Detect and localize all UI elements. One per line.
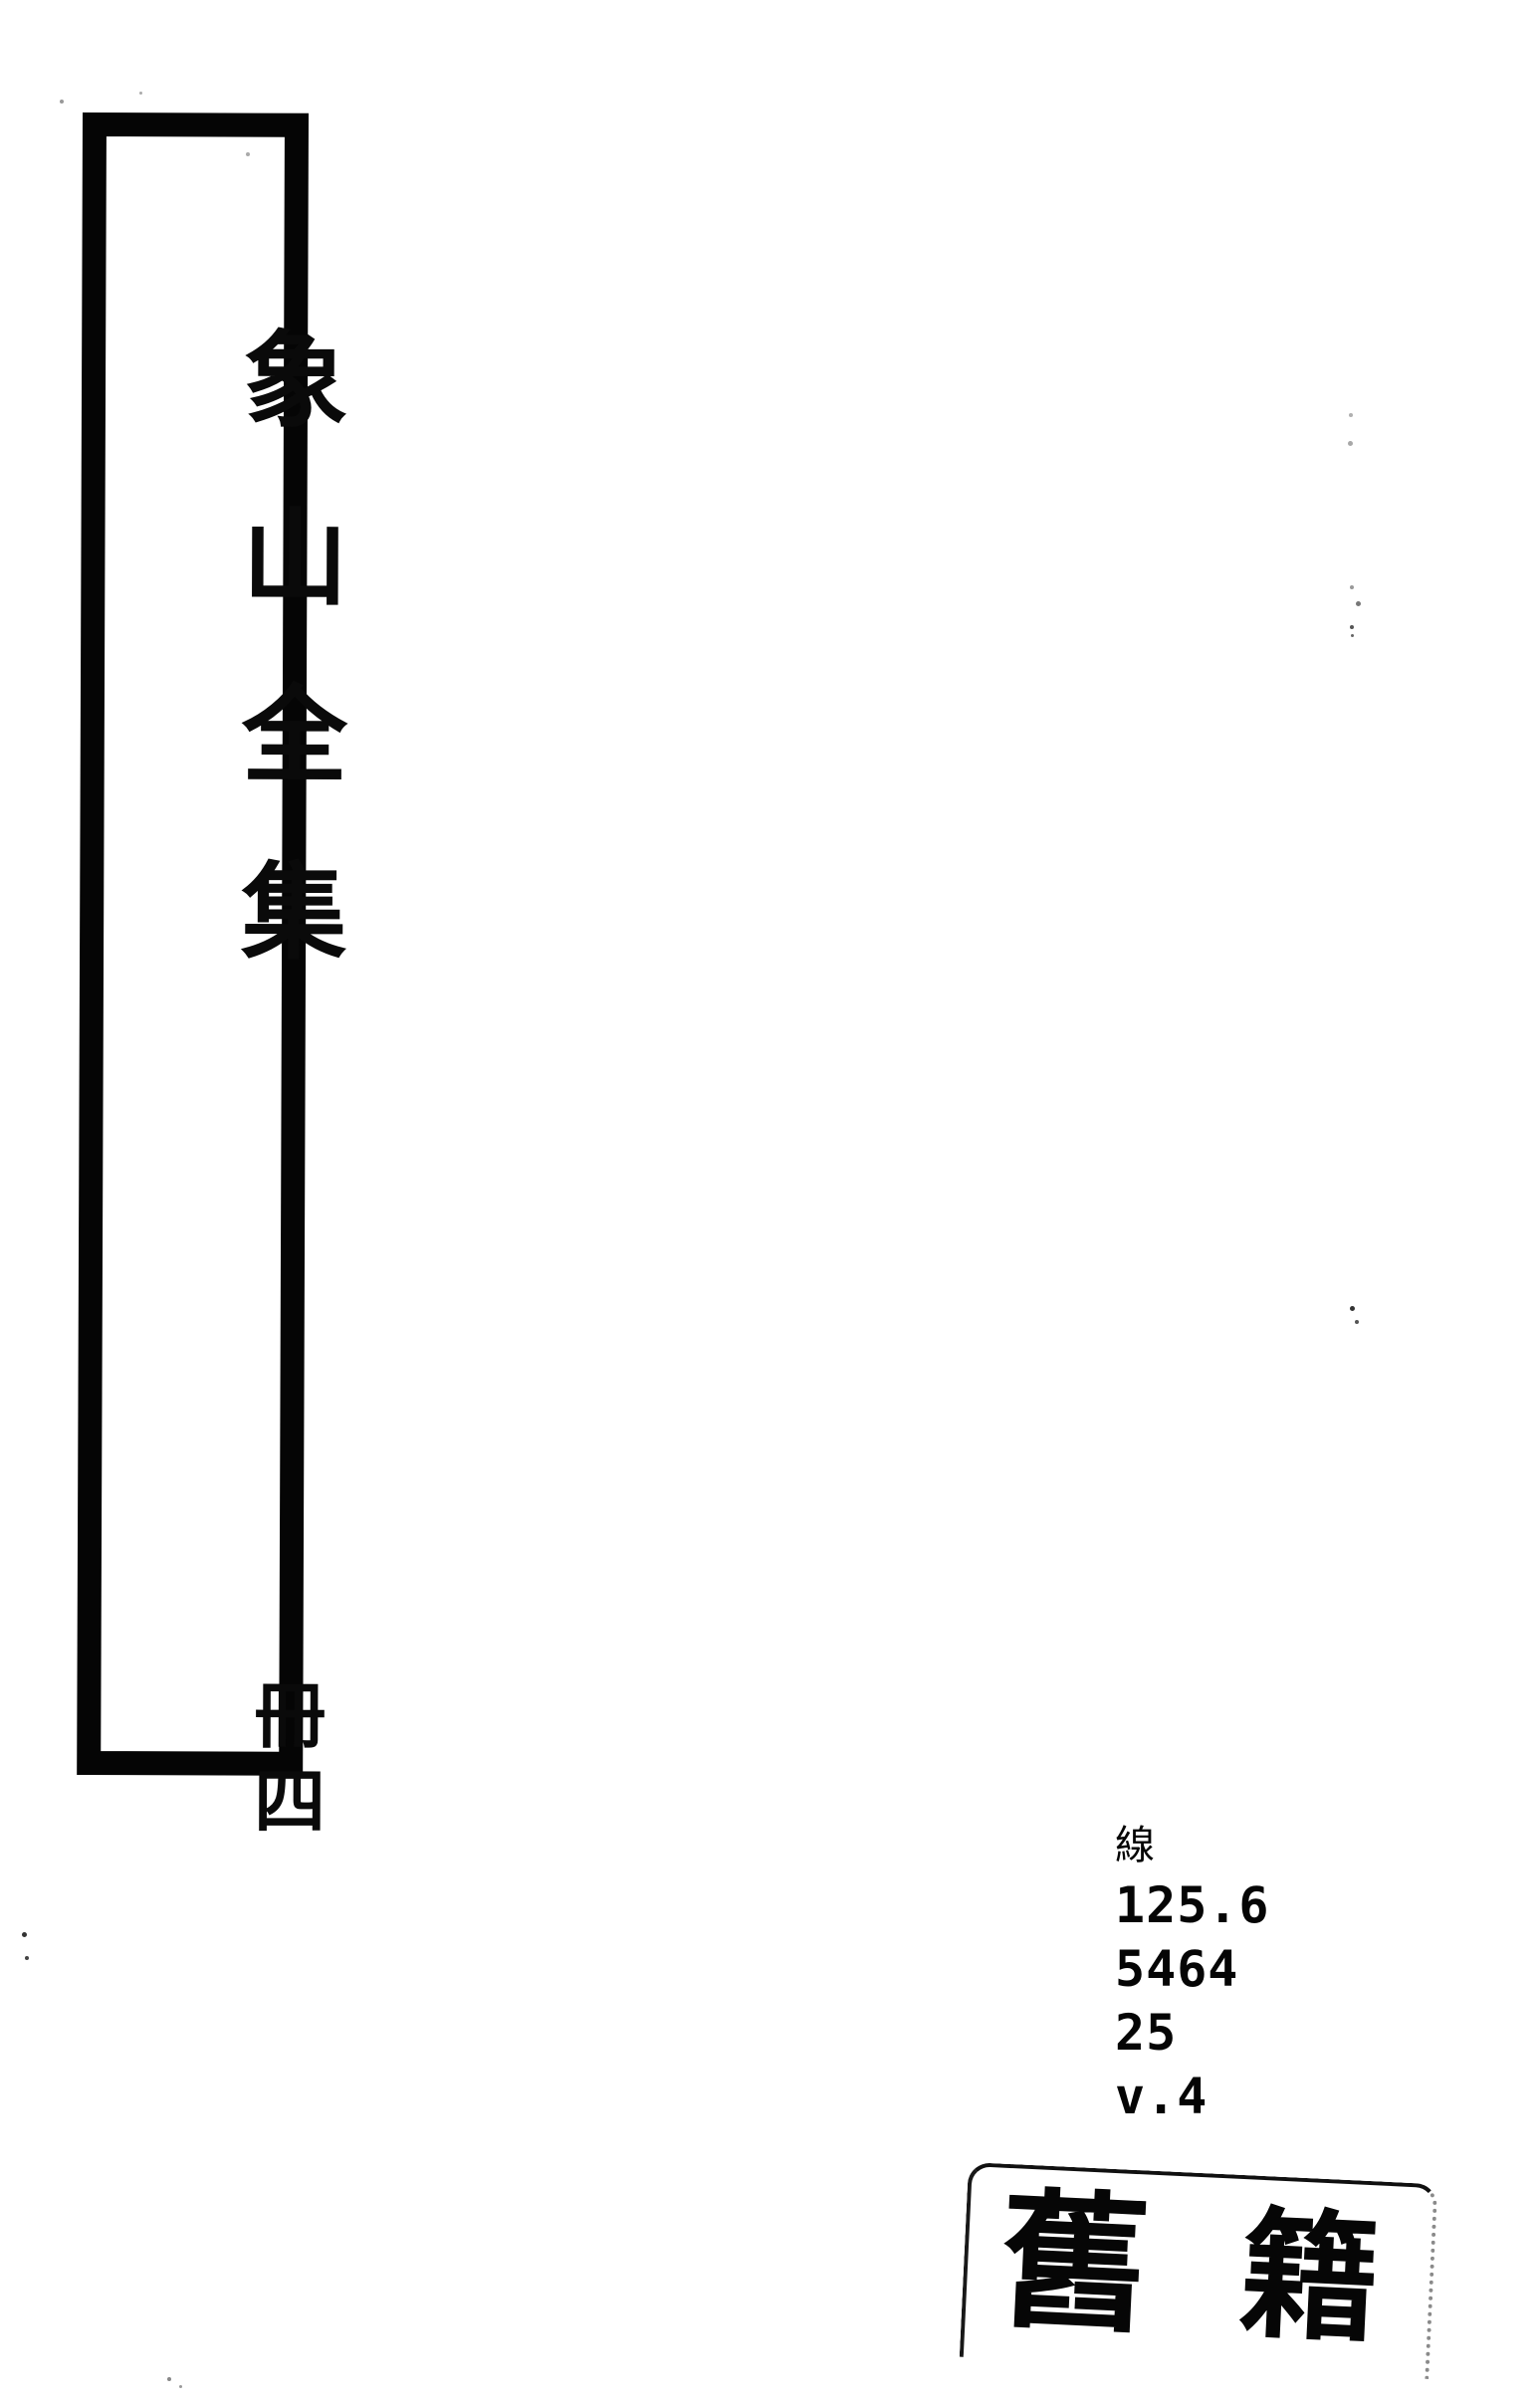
scanned-book-cover-page: 象 山 全 集 冊 四 線 125.6 5464 25 v.4 舊 籍: [0, 0, 1540, 2408]
title-label-box: 象 山 全 集 冊 四: [77, 112, 309, 1776]
scan-speckle: [1348, 441, 1353, 446]
scan-speckle: [167, 2377, 171, 2381]
scan-speckle: [139, 92, 142, 95]
scan-speckle: [22, 1932, 27, 1937]
title-char-4: 集: [241, 860, 346, 966]
title-char-2: 山: [242, 506, 347, 611]
scan-speckle: [60, 100, 64, 104]
book-title-vertical: 象 山 全 集: [241, 328, 348, 966]
volume-char-2: 四: [254, 1766, 326, 1838]
scan-speckle: [1350, 585, 1354, 589]
call-number-line-4: v.4: [1115, 2065, 1270, 2128]
scan-speckle: [1351, 634, 1354, 637]
old-books-stamp: 舊 籍: [960, 2162, 1438, 2379]
call-number-class-char: 線: [1115, 1824, 1270, 1867]
scan-speckle: [1350, 625, 1354, 629]
scan-speckle: [25, 1956, 29, 1960]
call-number: 線 125.6 5464 25 v.4: [1115, 1824, 1270, 2128]
scan-speckle: [1356, 601, 1361, 606]
call-number-line-1: 125.6: [1115, 1873, 1270, 1937]
stamp-char-ji: 籍: [1237, 2205, 1383, 2350]
call-number-line-3: 25: [1115, 2001, 1270, 2065]
stamp-char-jiu: 舊: [996, 2186, 1153, 2342]
volume-label-vertical: 冊 四: [254, 1680, 327, 1838]
call-number-line-2: 5464: [1115, 1937, 1270, 2001]
title-char-3: 全: [242, 683, 347, 788]
volume-char-1: 冊: [254, 1680, 326, 1752]
title-char-1: 象: [243, 328, 348, 434]
scan-speckle: [1350, 1306, 1355, 1311]
scan-speckle: [1349, 413, 1353, 417]
scan-speckle: [179, 2385, 182, 2388]
scan-speckle: [1355, 1320, 1359, 1324]
scan-speckle: [246, 152, 250, 156]
